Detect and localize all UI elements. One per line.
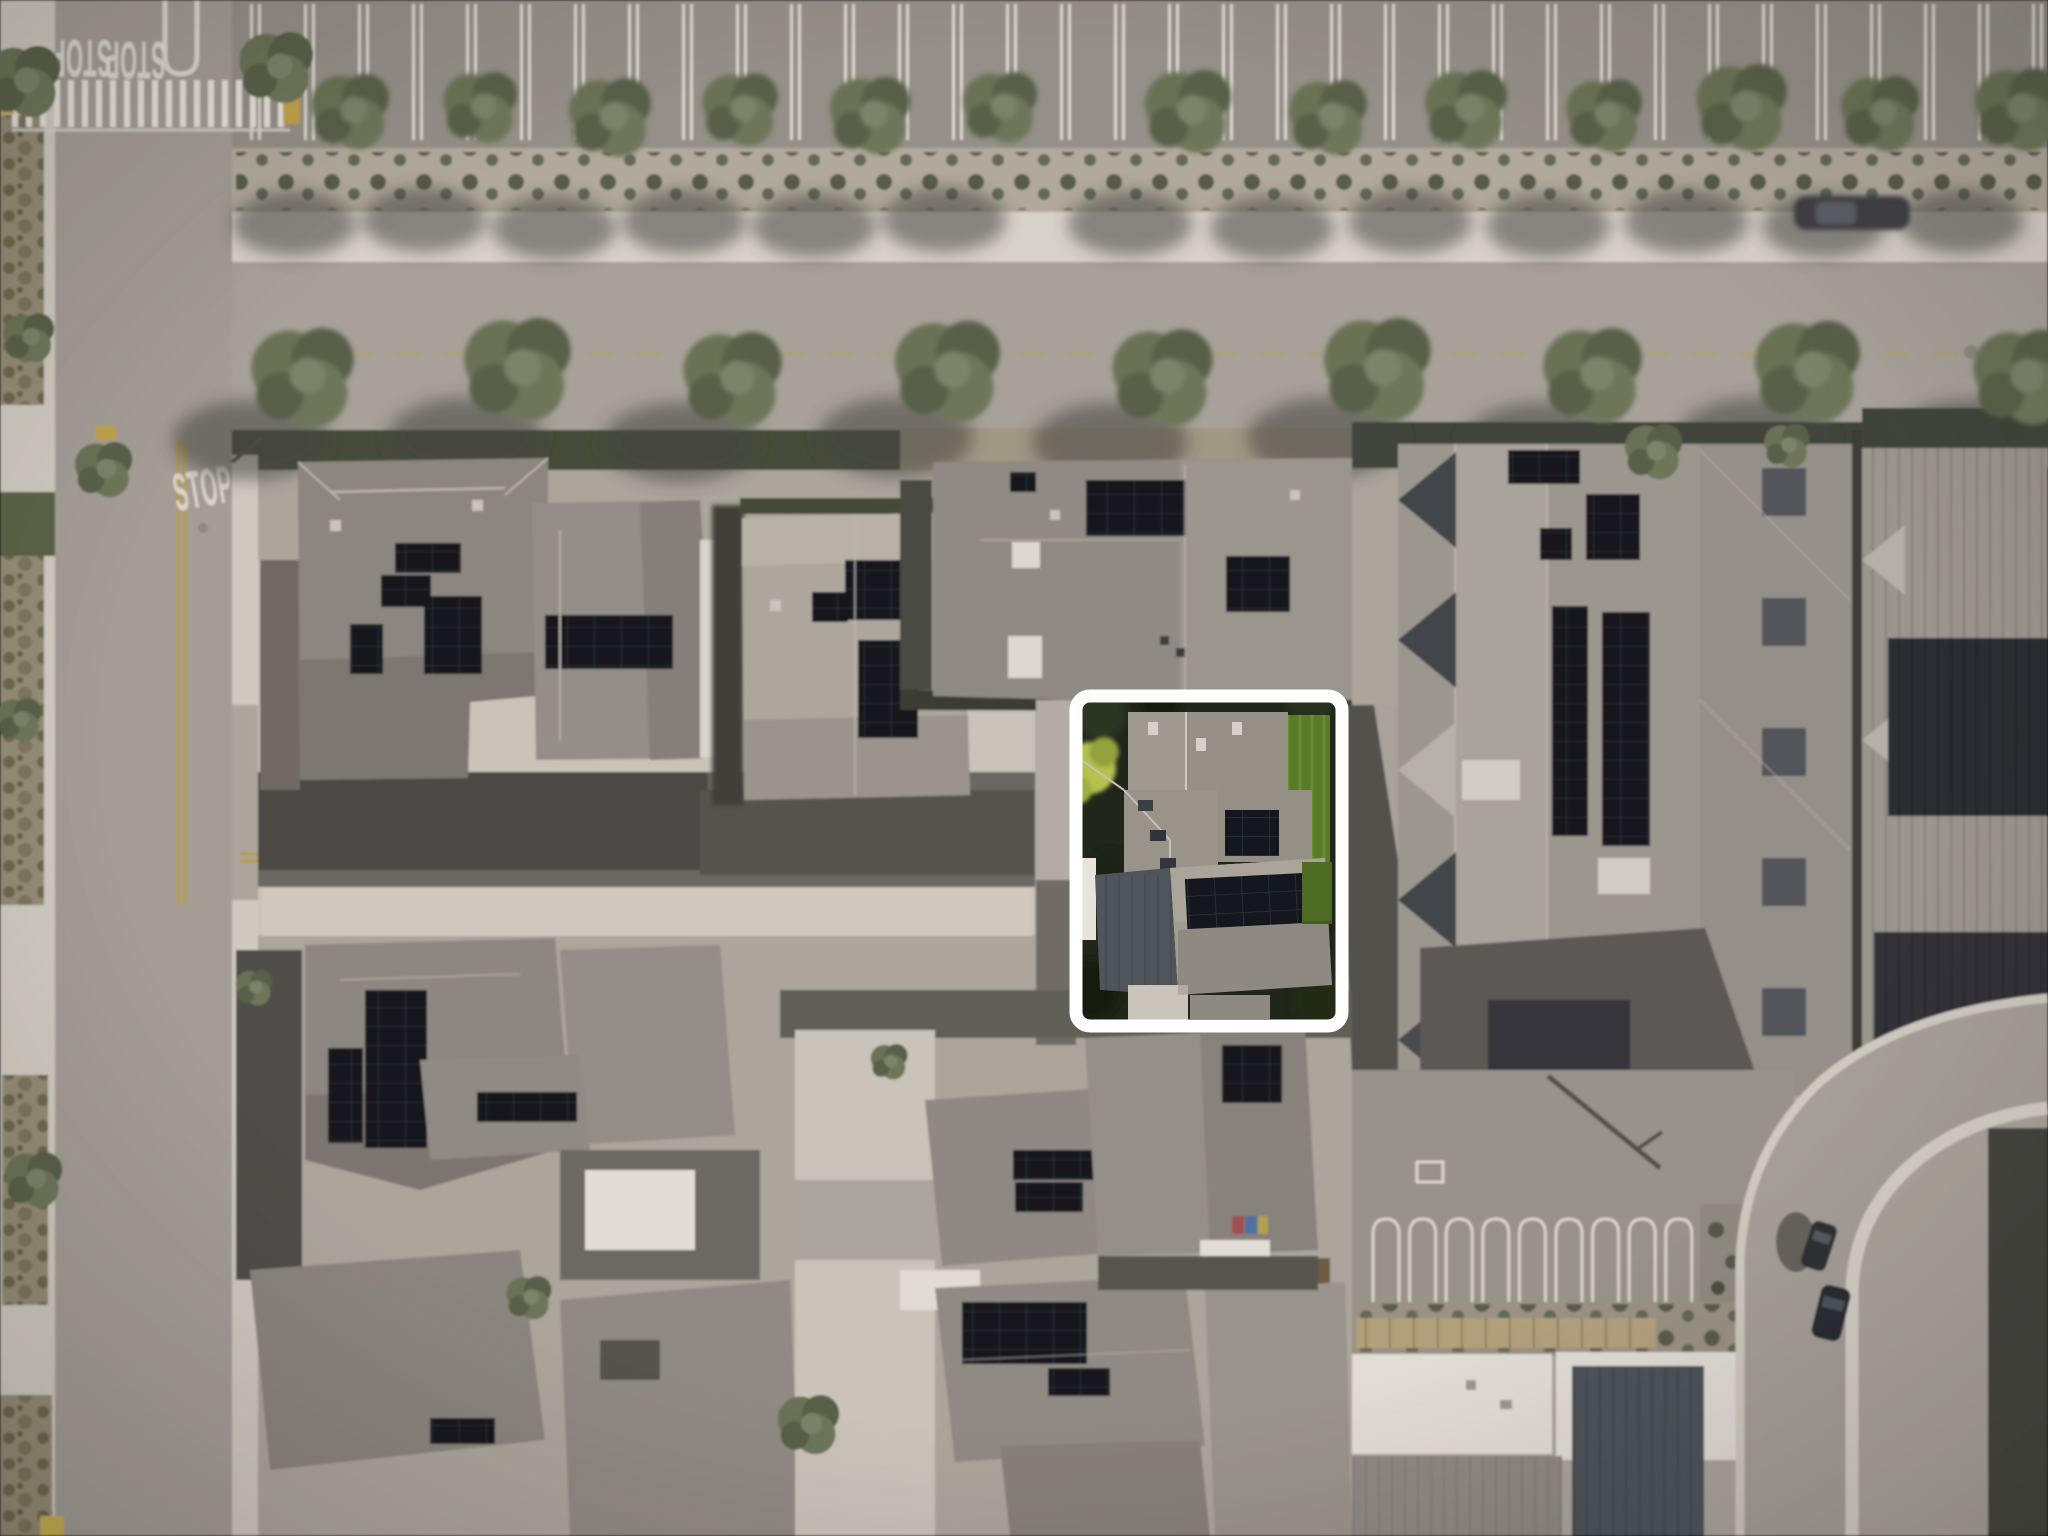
- aerial-photo: STOP STOP STOP STOP: [0, 0, 2048, 1536]
- vignette: [0, 0, 2048, 1536]
